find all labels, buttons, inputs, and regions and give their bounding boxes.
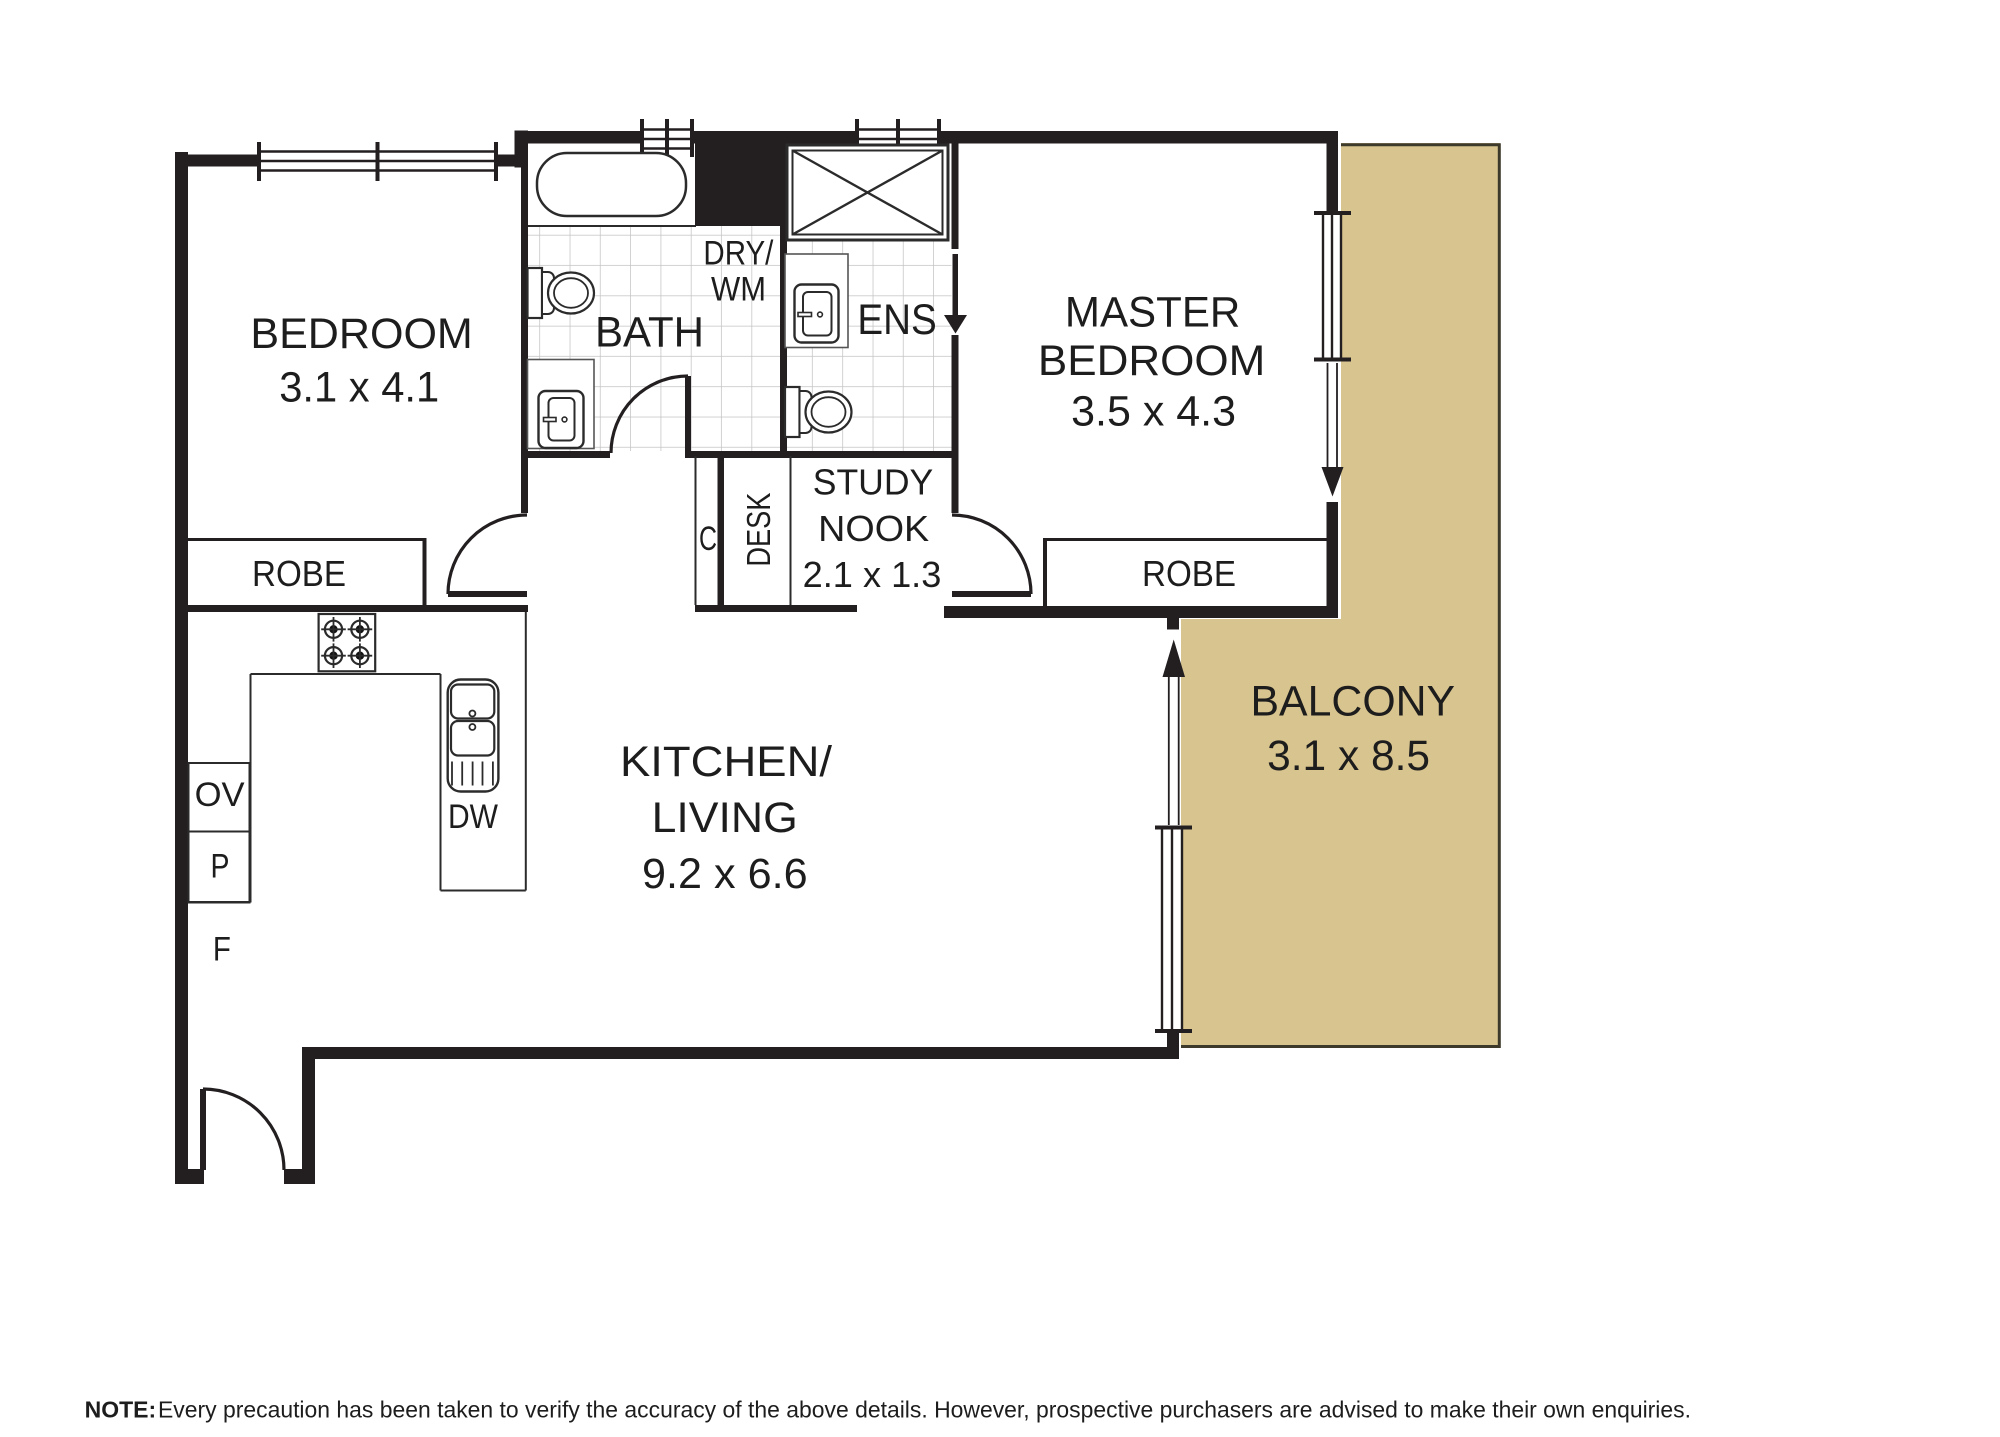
svg-text:ROBE: ROBE: [252, 553, 346, 594]
svg-text:BEDROOM: BEDROOM: [250, 310, 472, 358]
svg-text:BEDROOM: BEDROOM: [1038, 337, 1266, 385]
svg-text:NOTE:: NOTE:: [85, 1396, 157, 1422]
svg-text:ENS: ENS: [857, 296, 936, 344]
svg-text:9.2 x 6.6: 9.2 x 6.6: [642, 850, 808, 898]
svg-text:STUDY: STUDY: [813, 462, 934, 503]
svg-text:2.1 x 1.3: 2.1 x 1.3: [803, 554, 942, 595]
svg-text:C: C: [699, 520, 717, 558]
svg-text:LIVING: LIVING: [652, 794, 798, 842]
svg-text:BALCONY: BALCONY: [1251, 678, 1456, 726]
svg-text:F: F: [213, 930, 231, 968]
svg-text:Every precaution has been take: Every precaution has been taken to verif…: [158, 1396, 1691, 1422]
svg-text:3.5 x 4.3: 3.5 x 4.3: [1071, 387, 1236, 435]
svg-text:BATH: BATH: [595, 308, 704, 356]
svg-text:OV: OV: [195, 776, 245, 814]
svg-text:KITCHEN/: KITCHEN/: [620, 738, 832, 786]
svg-text:DRY/: DRY/: [703, 235, 773, 273]
svg-text:3.1 x 4.1: 3.1 x 4.1: [279, 363, 439, 411]
svg-text:MASTER: MASTER: [1065, 288, 1240, 336]
svg-text:P: P: [211, 848, 230, 886]
svg-text:WM: WM: [711, 271, 766, 309]
svg-text:ROBE: ROBE: [1142, 553, 1236, 594]
svg-text:NOOK: NOOK: [818, 508, 929, 549]
svg-text:3.1 x 8.5: 3.1 x 8.5: [1267, 732, 1430, 780]
svg-text:DW: DW: [448, 798, 498, 836]
svg-text:DESK: DESK: [740, 493, 777, 567]
